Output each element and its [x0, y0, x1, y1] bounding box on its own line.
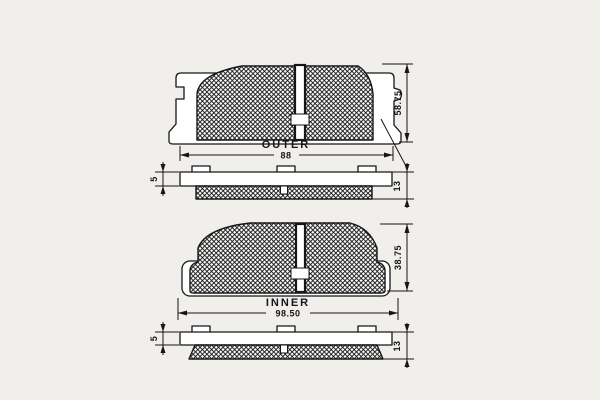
outer-center-slot: [295, 65, 305, 140]
drawing-canvas: OUTER 88 58.75 5: [0, 0, 600, 400]
brake-pad-technical-drawing: OUTER 88 58.75 5: [0, 0, 600, 400]
profile2-center-notch: [281, 345, 288, 353]
outer-wear-indicator-notch: [291, 114, 309, 125]
profile2-thickness-dim-text: 13: [392, 340, 402, 351]
outer-width-dim-text: 88: [280, 151, 291, 161]
inner-wear-indicator-notch: [291, 268, 309, 279]
inner-width-dim-text: 98.50: [275, 309, 300, 319]
profile1-backplate-dim-text: 5: [149, 176, 159, 182]
profile1-center-notch: [281, 186, 288, 194]
profile1-backplate: [180, 172, 392, 186]
outer-height-dim-text: 58.75: [393, 90, 403, 115]
outer-friction-material: [197, 66, 373, 140]
profile2-backplate-dim-text: 5: [149, 336, 159, 342]
inner-height-dim-text: 38.75: [393, 245, 403, 270]
inner-center-slot: [296, 224, 305, 292]
profile1-thickness-dim-text: 13: [392, 180, 402, 191]
inner-friction-material: [190, 223, 385, 293]
profile2-backplate: [180, 332, 392, 345]
